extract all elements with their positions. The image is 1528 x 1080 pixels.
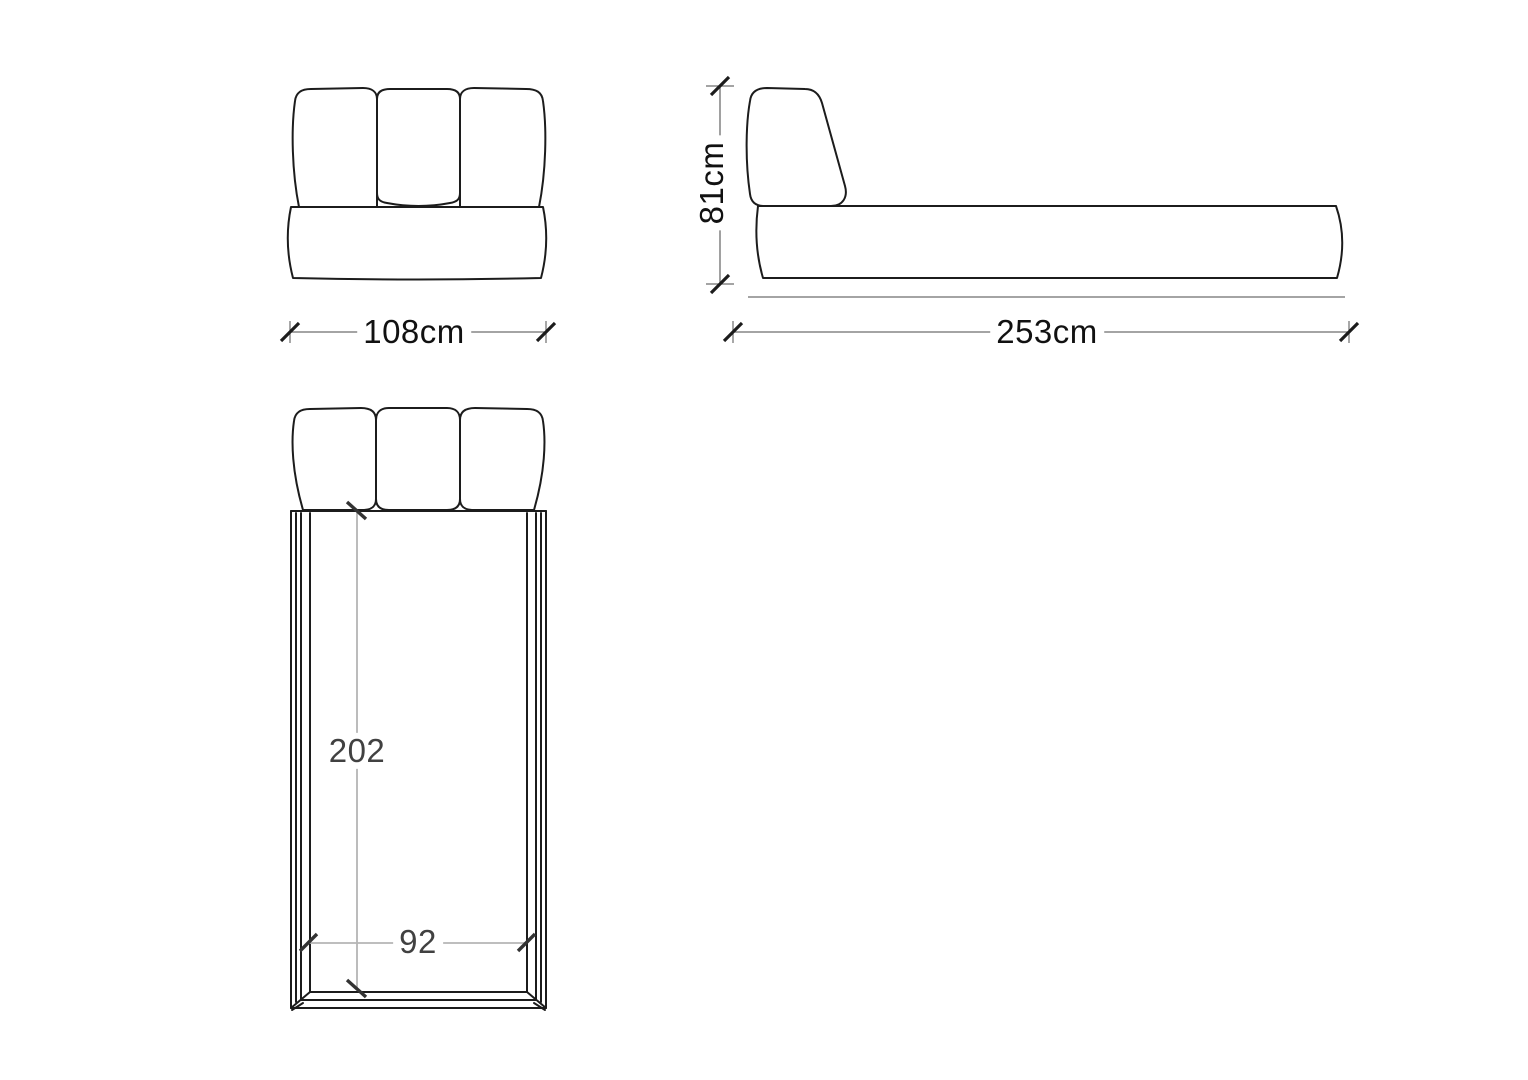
headboard-cushion-right-plan	[460, 408, 544, 510]
front-width-dimension-label: 108cm	[357, 314, 471, 350]
drawing-linework	[0, 0, 1528, 1080]
top-length-dimension-label: 202	[323, 733, 392, 769]
top-view	[291, 408, 546, 1010]
side-length-dimension-label: 253cm	[990, 314, 1104, 350]
headboard-cushion-center-plan	[376, 408, 460, 510]
headboard-cushion-left-plan	[293, 408, 376, 510]
headboard-cushion-right-front	[460, 88, 545, 207]
side-height-dimension-label: 81cm	[694, 136, 730, 231]
bed-dimension-drawing: 108cm 81cm 253cm 202 92	[0, 0, 1528, 1080]
headboard-profile	[747, 88, 846, 206]
front-view	[281, 88, 555, 343]
headboard-cushion-center-front	[377, 89, 460, 206]
headboard-cushion-left-front	[293, 88, 377, 207]
top-width-dimension-label: 92	[393, 924, 443, 960]
side-view	[706, 77, 1358, 343]
bed-base-front	[288, 207, 546, 280]
bed-base-side	[756, 206, 1342, 278]
